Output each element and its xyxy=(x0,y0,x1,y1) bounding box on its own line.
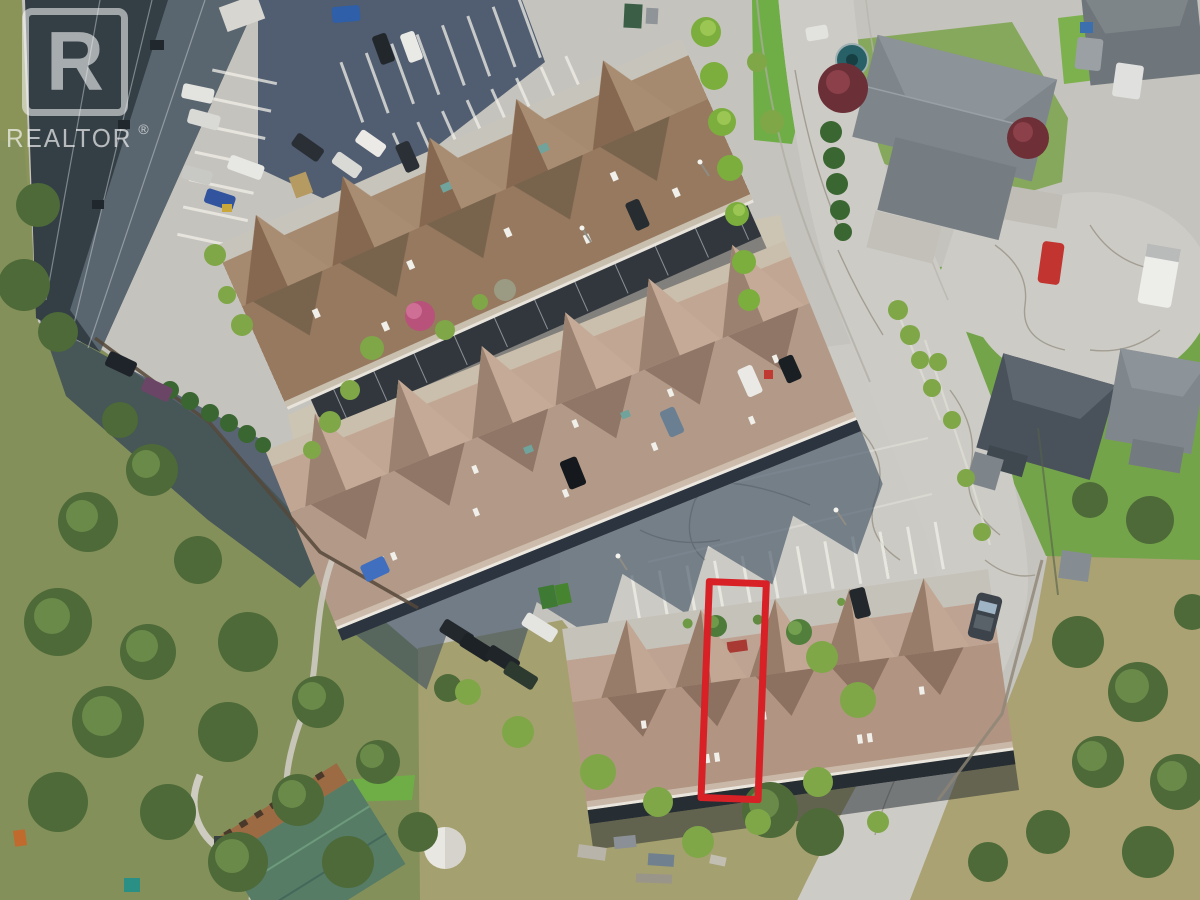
aerial-photo-graphic xyxy=(0,0,1200,900)
teal-object xyxy=(124,878,140,892)
red-object xyxy=(764,370,773,379)
blue-truck xyxy=(331,5,360,23)
green-dumpster xyxy=(623,4,642,29)
aerial-photo: R REALTOR ® xyxy=(0,0,1200,900)
white-van xyxy=(1112,62,1144,100)
orange-object xyxy=(13,829,27,847)
gray-van xyxy=(1074,37,1103,72)
gray-bin xyxy=(646,8,659,25)
shed xyxy=(1058,550,1092,582)
highlight-rectangle xyxy=(697,578,770,803)
blue-car xyxy=(1080,22,1093,33)
yellow-equipment xyxy=(222,204,232,212)
dry-bush xyxy=(494,279,516,301)
